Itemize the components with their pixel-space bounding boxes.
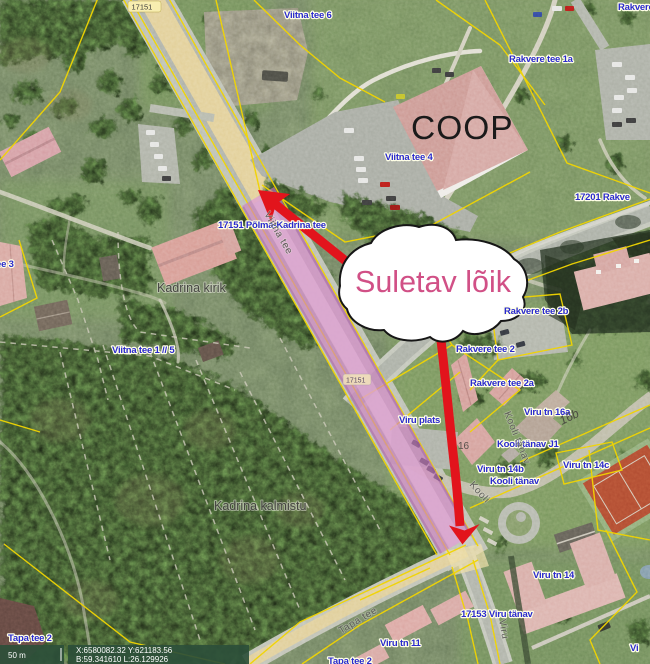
svg-text:Tapa tee 2: Tapa tee 2	[8, 633, 52, 644]
svg-text:B:59.341610 L:26.129926: B:59.341610 L:26.129926	[76, 655, 169, 664]
svg-text:Viru tn 14b: Viru tn 14b	[477, 464, 524, 475]
svg-text:Kooli tänav J1: Kooli tänav J1	[497, 439, 560, 450]
svg-text:X:6580082.32 Y:621183.56: X:6580082.32 Y:621183.56	[76, 646, 173, 655]
svg-text:Viru tn 11: Viru tn 11	[380, 638, 422, 649]
svg-text:Rakvere tee 1a: Rakvere tee 1a	[509, 54, 574, 65]
svg-text:Kadrina kalmistu: Kadrina kalmistu	[214, 499, 306, 513]
svg-text:Rakvere tee 2a: Rakvere tee 2a	[470, 378, 535, 389]
svg-text:16: 16	[458, 441, 470, 452]
svg-text:17151: 17151	[346, 378, 366, 385]
svg-text:Tapa tee 2: Tapa tee 2	[328, 656, 372, 664]
svg-text:Suletav lõik: Suletav lõik	[355, 265, 512, 299]
svg-text:Rakvere tee 2b: Rakvere tee 2b	[504, 306, 569, 317]
svg-text:Viitna tee 4: Viitna tee 4	[385, 152, 434, 163]
svg-text:17153 Viru tänav: 17153 Viru tänav	[461, 609, 534, 620]
svg-text:Viru tn 14: Viru tn 14	[533, 570, 575, 581]
svg-text:50 m: 50 m	[8, 651, 26, 660]
svg-text:Rakvere te: Rakvere te	[618, 2, 650, 13]
svg-text:Kadrina kirik: Kadrina kirik	[157, 281, 227, 295]
svg-text:Viru plats: Viru plats	[399, 415, 440, 426]
svg-text:Viru tn 14c: Viru tn 14c	[563, 460, 609, 471]
svg-text:Kooli tänav: Kooli tänav	[490, 476, 540, 487]
svg-text:Viitna tee 1 // 5: Viitna tee 1 // 5	[112, 345, 175, 356]
svg-text:ee 3: ee 3	[0, 259, 14, 270]
svg-text:Viitna tee 6: Viitna tee 6	[284, 10, 332, 21]
svg-text:17201 Rakve: 17201 Rakve	[575, 192, 630, 203]
svg-text:17151: 17151	[132, 3, 153, 12]
svg-text:Rakvere tee 2: Rakvere tee 2	[456, 344, 515, 355]
svg-text:Vi: Vi	[630, 643, 638, 654]
